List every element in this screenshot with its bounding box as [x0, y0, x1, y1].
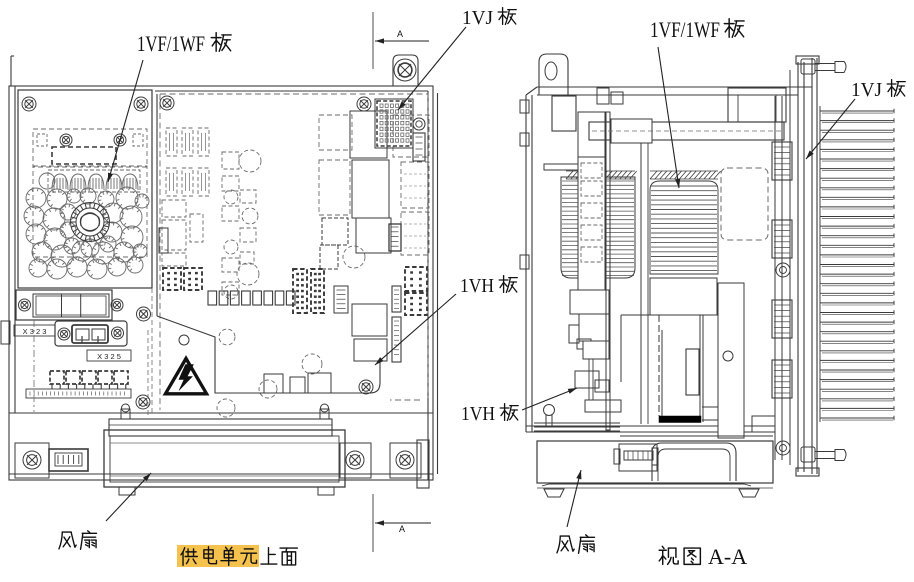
svg-text:A-A: A-A	[708, 544, 747, 569]
svg-text:A: A	[397, 29, 403, 39]
svg-text:1VF/1WF: 1VF/1WF	[137, 31, 205, 56]
svg-text:X 3 2 3: X 3 2 3	[23, 327, 47, 336]
svg-text:1VJ: 1VJ	[462, 7, 493, 29]
svg-text:1VH: 1VH	[461, 403, 495, 425]
svg-text:1VJ: 1VJ	[851, 79, 882, 101]
svg-text:1VF/1WF: 1VF/1WF	[650, 17, 720, 42]
svg-text:A: A	[399, 524, 405, 534]
svg-text:1VH: 1VH	[460, 275, 494, 297]
svg-text:X 3 2 5: X 3 2 5	[97, 352, 121, 361]
